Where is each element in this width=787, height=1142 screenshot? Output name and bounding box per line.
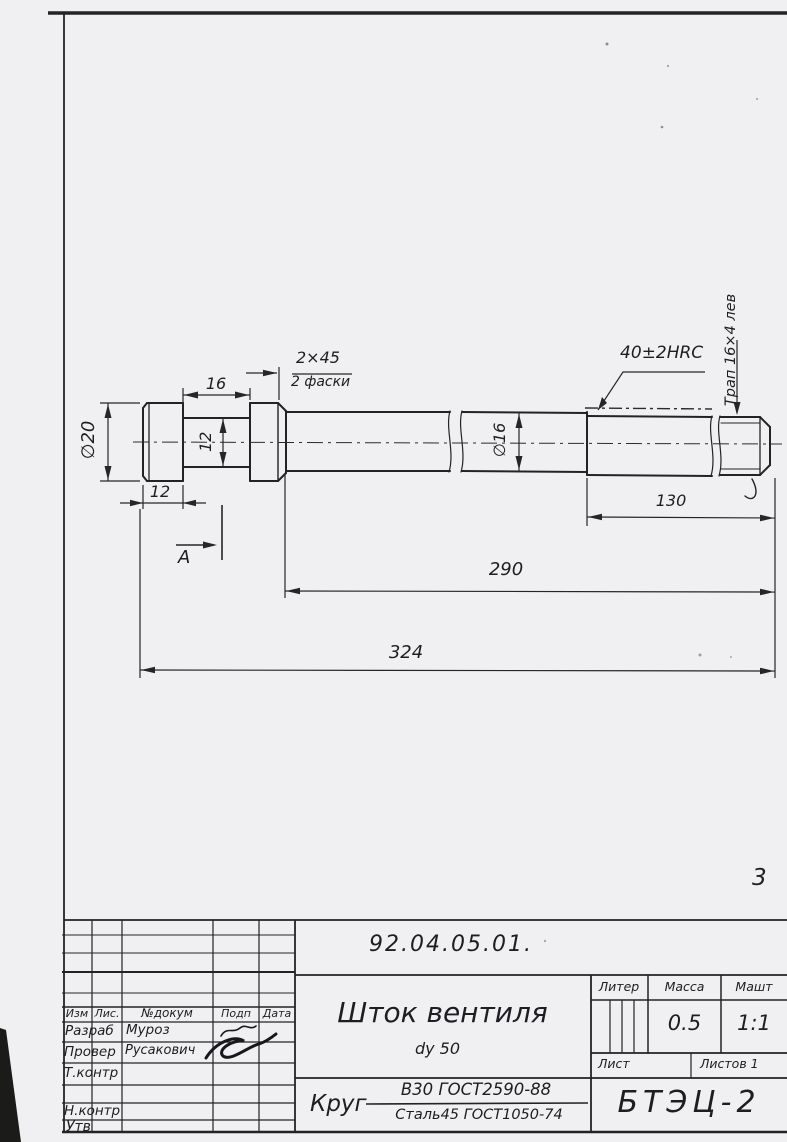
signature-developed [221,1026,256,1036]
dim-diameter-12: 12 [197,417,215,467]
hardness-note: 40±2HRC [620,344,703,363]
scale-label: Машт [723,980,785,994]
part-title: Шток вентиля [300,998,585,1029]
name-checked: Русакович [125,1044,195,1058]
dim-length-16: 16 [196,375,236,393]
page-note: 3 [752,866,767,891]
org-name: БТЭЦ-2 [593,1086,785,1119]
signature-checked [206,1034,276,1058]
material-denominator: Сталь45 ГОСТ1050-74 [368,1108,590,1124]
liter-label: Литер [593,980,645,994]
header-izm: Изм [63,1008,91,1020]
role-tcontrol: Т.контр [64,1066,118,1081]
role-developed: Разраб [65,1024,114,1039]
material-prefix: Круг [310,1092,367,1117]
scale-value: 1:1 [723,1012,785,1035]
mass-label: Масса [650,980,719,994]
name-developed: Муроз [126,1023,170,1038]
role-checked: Провер [64,1045,116,1060]
drawing-designation: 92.04.05.01. [295,933,607,957]
dim-length-290: 290 [478,560,534,580]
mass-value: 0.5 [650,1012,719,1035]
drawing-sheet: ∅20 16 2×45 2 фаски 12 12 А ∅16 40±2HRC … [0,0,787,1142]
dimension-arrows [105,370,775,675]
dim-length-324: 324 [378,643,434,663]
part-subtitle: dу 50 [380,1040,495,1058]
drawing-linework [0,0,787,1142]
role-ncontrol: Н.контр [64,1104,120,1119]
dim-length-130: 130 [645,492,697,510]
hardness-zone-line [585,408,712,409]
header-date: Дата [260,1008,294,1020]
dim-head-length-12: 12 [145,483,175,501]
material-numerator: В30 ГОСТ2590-88 [368,1081,584,1099]
dim-diameter-16: ∅16 [491,408,509,472]
part-outline [143,403,770,499]
dim-chamfer-note: 2 фаски [291,375,350,390]
sheets-label: Листов 1 [700,1057,759,1071]
centerline [133,408,782,444]
dim-chamfer: 2×45 [296,349,340,367]
dim-diameter-20: ∅20 [79,408,99,472]
sheet-label: Лист [598,1057,630,1071]
role-approved: Утв [66,1120,91,1135]
header-list: Лис. [93,1008,121,1020]
thread-note: Трап 16×4 лев [724,288,740,412]
header-doc: №докум [124,1007,210,1020]
header-sign: Подп [214,1008,258,1020]
view-label-a: А [178,548,190,568]
sheet-frame [48,12,787,1132]
